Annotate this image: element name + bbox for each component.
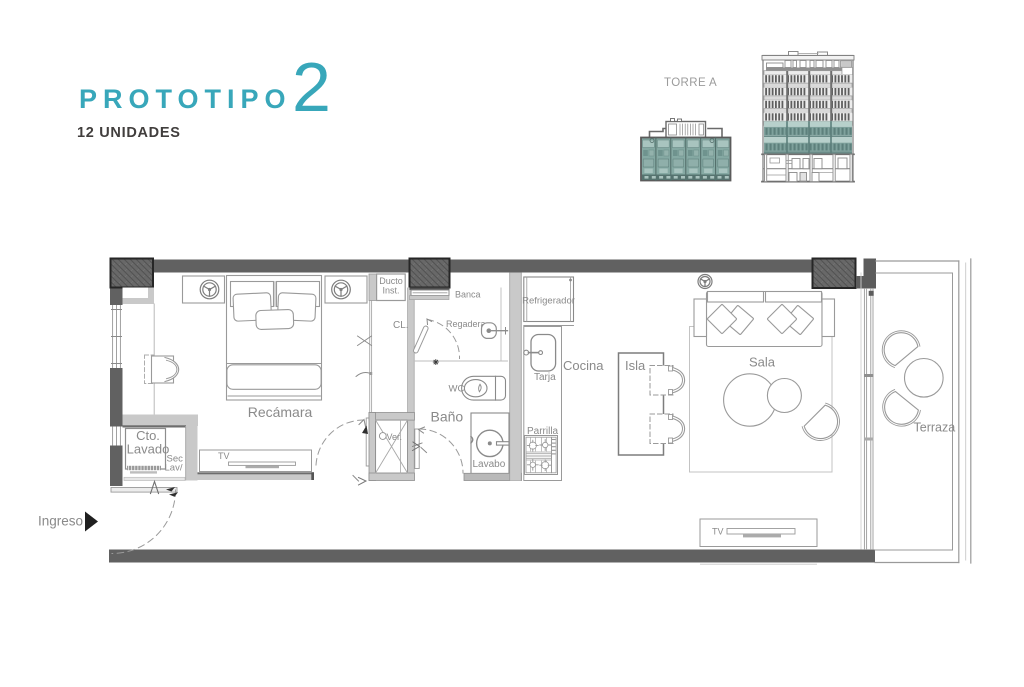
svg-text:12 UNIDADES: 12 UNIDADES [77, 125, 181, 141]
svg-text:PROTOTIPO: PROTOTIPO [79, 84, 292, 114]
svg-text:TV: TV [218, 451, 230, 461]
svg-text:Baño: Baño [431, 409, 464, 425]
svg-text:CL.: CL. [393, 320, 409, 331]
svg-text:Ingreso: Ingreso [38, 514, 83, 529]
svg-text:Cocina: Cocina [563, 358, 604, 373]
svg-text:Sala: Sala [749, 355, 776, 370]
svg-text:Isla: Isla [625, 358, 646, 373]
svg-text:Ducto: Ducto [379, 276, 403, 286]
svg-text:Recámara: Recámara [248, 404, 313, 420]
svg-text:Refrigerador: Refrigerador [522, 296, 575, 307]
svg-text:Tarja: Tarja [534, 372, 556, 383]
svg-text:TORRE A: TORRE A [664, 77, 717, 89]
svg-text:Ver.: Ver. [387, 432, 403, 442]
svg-text:Terraza: Terraza [914, 421, 956, 435]
svg-text:Lav/: Lav/ [165, 463, 183, 474]
svg-text:Regadera: Regadera [446, 319, 486, 329]
svg-text:Lavabo: Lavabo [473, 459, 506, 470]
svg-text:Inst.: Inst. [382, 286, 399, 296]
svg-text:2: 2 [292, 48, 331, 126]
svg-text:Banca: Banca [455, 290, 481, 300]
svg-text:WC: WC [449, 384, 465, 395]
svg-text:Lavado: Lavado [127, 442, 170, 457]
svg-text:TV: TV [712, 527, 724, 537]
